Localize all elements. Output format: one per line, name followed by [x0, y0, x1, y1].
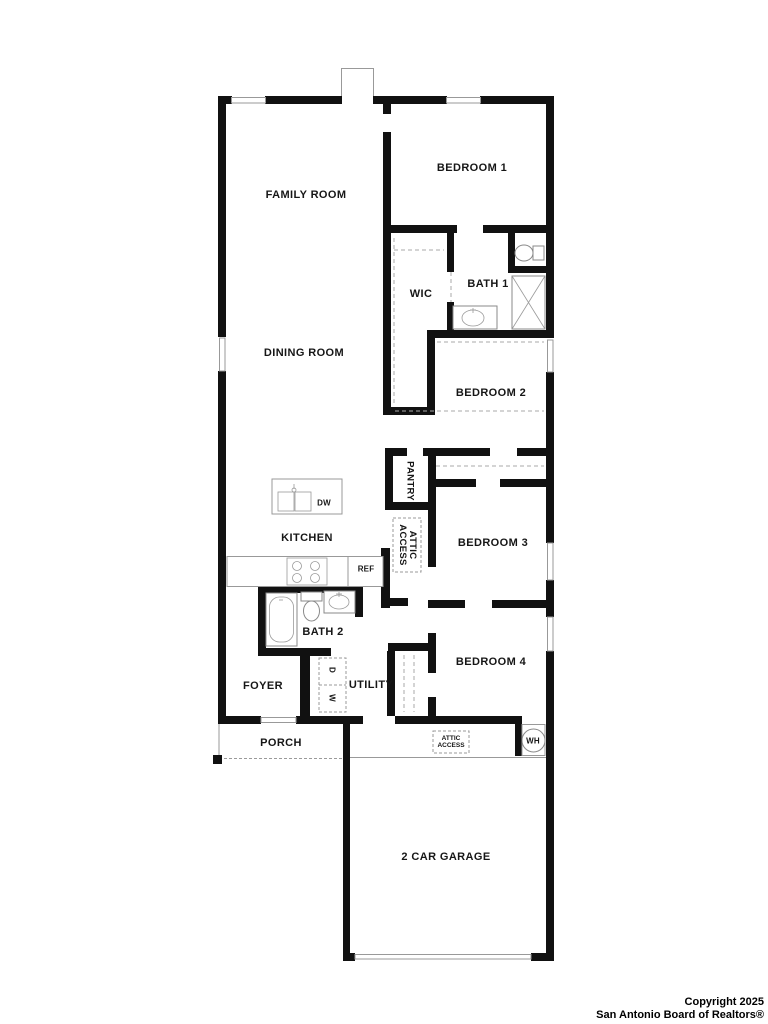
porch-post — [213, 755, 222, 764]
bedroom-4-label: BEDROOM 4 — [456, 656, 526, 668]
attic-access-line2: ACCESS — [437, 742, 464, 749]
toilet-icon — [301, 592, 322, 601]
kitchen-island — [272, 479, 342, 514]
water-heater-label: WH — [526, 737, 540, 746]
kitchen-counter — [227, 557, 348, 587]
washer-label: W — [328, 694, 337, 702]
dryer-label: D — [328, 667, 337, 673]
utility-label: UTILITY — [349, 679, 393, 691]
wic-label: WIC — [410, 288, 433, 300]
attic-access-hall-label: ATTIC ACCESS — [397, 524, 417, 565]
refrigerator-label: REF — [358, 565, 375, 574]
floorplan-page: FAMILY ROOM BEDROOM 1 WIC BATH 1 DINING … — [0, 0, 768, 1024]
garage-walls — [343, 724, 554, 961]
copyright-line1: Copyright 2025 — [596, 996, 764, 1009]
attic-access-line2: ACCESS — [397, 524, 407, 565]
toilet-icon — [515, 245, 533, 261]
attic-access-line1: ATTIC — [407, 524, 417, 565]
attic-access-line1: ATTIC — [437, 735, 464, 742]
chimney-outline — [342, 69, 374, 97]
dining-room-label: DINING ROOM — [264, 347, 344, 359]
family-room-label: FAMILY ROOM — [266, 189, 347, 201]
bedroom-1-label: BEDROOM 1 — [437, 162, 507, 174]
garage-label: 2 CAR GARAGE — [401, 851, 490, 863]
pantry-label: PANTRY — [405, 461, 416, 501]
floorplan-linework — [0, 0, 768, 1024]
kitchen-label: KITCHEN — [281, 532, 333, 544]
dishwasher-label: DW — [317, 499, 331, 508]
attic-access-garage-label: ATTIC ACCESS — [437, 735, 464, 749]
bath-1-label: BATH 1 — [467, 278, 508, 290]
bedroom-3-label: BEDROOM 3 — [458, 537, 528, 549]
foyer-label: FOYER — [243, 680, 283, 692]
front-door-opening — [261, 718, 296, 723]
copyright-line2: San Antonio Board of Realtors® — [596, 1009, 764, 1022]
bathtub-icon — [266, 593, 297, 646]
bedroom-2-label: BEDROOM 2 — [456, 387, 526, 399]
garage-door — [355, 955, 531, 960]
copyright-notice: Copyright 2025 San Antonio Board of Real… — [596, 996, 764, 1022]
bath-2-label: BATH 2 — [302, 626, 343, 638]
porch-label: PORCH — [260, 737, 302, 749]
